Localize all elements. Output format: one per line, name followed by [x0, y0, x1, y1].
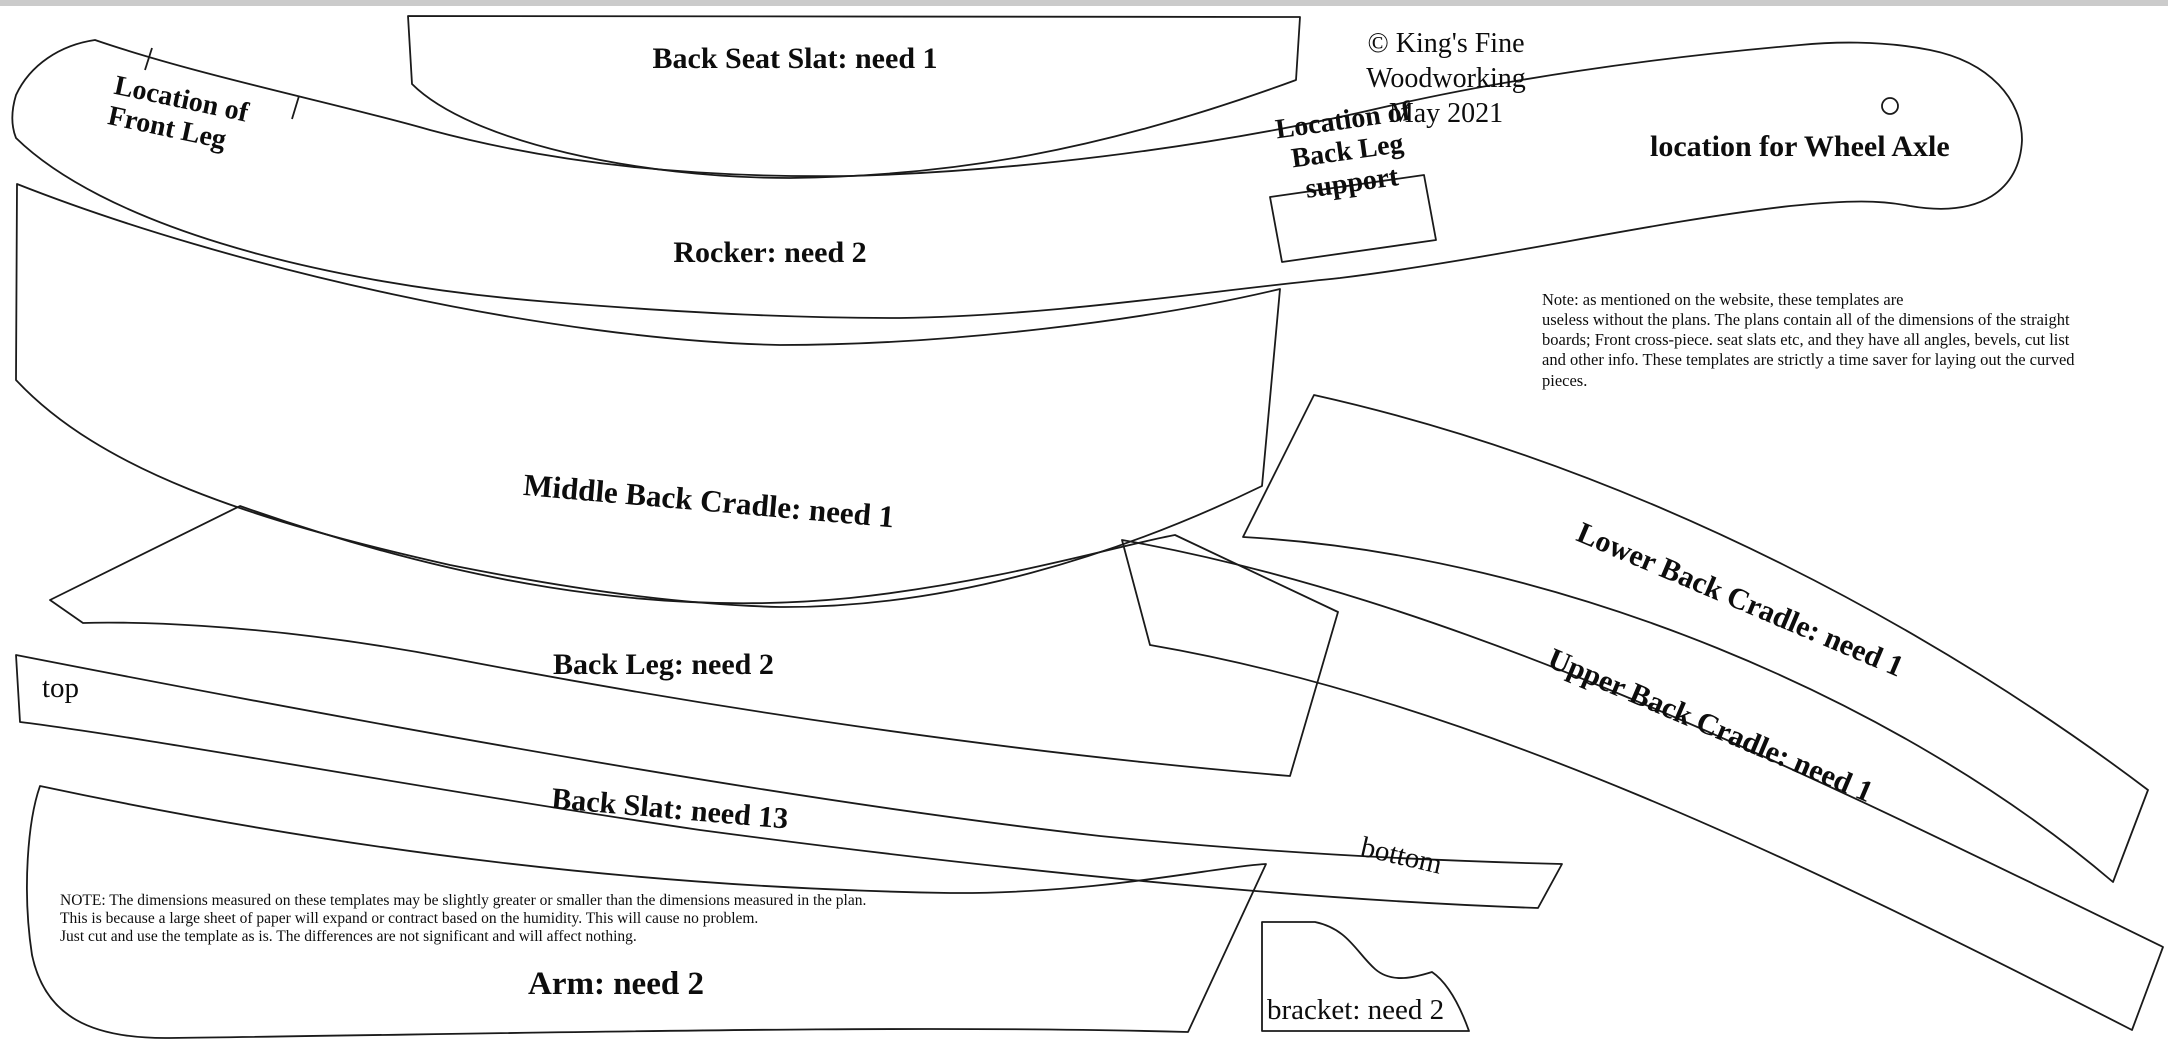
- back-leg-outline: [50, 506, 1338, 776]
- template-sheet: { "colors": { "line": "#1a1a1a", "text":…: [0, 0, 2168, 1046]
- humidity-note: NOTE: The dimensions measured on these t…: [60, 892, 900, 945]
- front-leg-tick-left: [145, 48, 152, 70]
- back-leg-label: Back Leg: need 2: [553, 648, 774, 682]
- back-slat-outline: [16, 655, 1562, 908]
- rocker-label: Rocker: need 2: [610, 236, 930, 270]
- plans-note: Note: as mentioned on the website, these…: [1542, 290, 2132, 391]
- back-seat-slat-label: Back Seat Slat: need 1: [640, 42, 950, 76]
- back-slat-top-end-label: top: [42, 672, 79, 704]
- arm-label: Arm: need 2: [528, 966, 704, 1003]
- lower-back-cradle-outline: [1243, 395, 2148, 882]
- wheel-axle-location-label: location for Wheel Axle: [1650, 130, 1950, 164]
- front-leg-tick-right: [292, 96, 299, 119]
- copyright-text: © King's Fine Woodworking: [1310, 26, 1582, 96]
- axle-hole: [1882, 98, 1898, 114]
- bracket-label: bracket: need 2: [1267, 994, 1444, 1026]
- upper-back-cradle-outline: [1122, 540, 2163, 1030]
